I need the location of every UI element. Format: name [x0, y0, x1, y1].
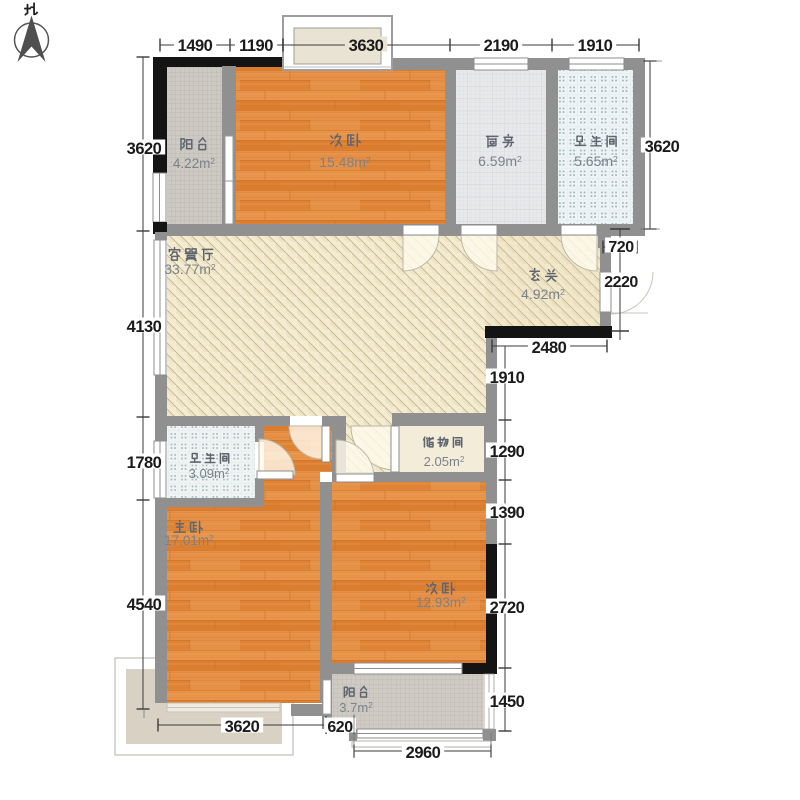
- svg-text:3620: 3620: [645, 138, 680, 156]
- svg-text:1910: 1910: [578, 37, 613, 55]
- svg-text:33.77m2: 33.77m2: [164, 261, 216, 277]
- svg-text:620: 620: [327, 719, 353, 736]
- svg-text:17.01m2: 17.01m2: [164, 533, 214, 548]
- svg-text:1290: 1290: [490, 443, 525, 461]
- svg-text:2190: 2190: [484, 37, 519, 55]
- svg-text:15.48m2: 15.48m2: [319, 154, 371, 170]
- svg-text:3.7m2: 3.7m2: [339, 700, 373, 715]
- svg-text:3620: 3620: [127, 140, 162, 158]
- svg-text:1780: 1780: [127, 454, 162, 472]
- svg-text:2220: 2220: [604, 274, 638, 291]
- svg-text:3620: 3620: [225, 718, 260, 736]
- svg-text:2480: 2480: [532, 339, 567, 357]
- svg-text:4540: 4540: [127, 596, 162, 614]
- svg-text:5.65m2: 5.65m2: [574, 153, 618, 169]
- svg-text:4.22m2: 4.22m2: [173, 156, 216, 171]
- svg-text:3630: 3630: [349, 37, 384, 55]
- svg-text:2.05m2: 2.05m2: [424, 454, 465, 469]
- svg-text:1450: 1450: [490, 693, 525, 711]
- svg-text:1390: 1390: [490, 504, 525, 522]
- svg-text:1190: 1190: [239, 37, 273, 55]
- svg-text:6.59m2: 6.59m2: [478, 153, 522, 169]
- svg-text:2720: 2720: [490, 599, 525, 617]
- svg-text:12.93m2: 12.93m2: [416, 595, 466, 610]
- svg-text:720: 720: [608, 239, 634, 256]
- svg-text:4130: 4130: [127, 318, 162, 336]
- svg-text:2960: 2960: [406, 744, 441, 762]
- svg-text:1490: 1490: [178, 37, 213, 55]
- svg-text:3.09m2: 3.09m2: [189, 466, 230, 481]
- svg-text:4.92m2: 4.92m2: [521, 286, 565, 302]
- svg-text:1910: 1910: [490, 369, 525, 387]
